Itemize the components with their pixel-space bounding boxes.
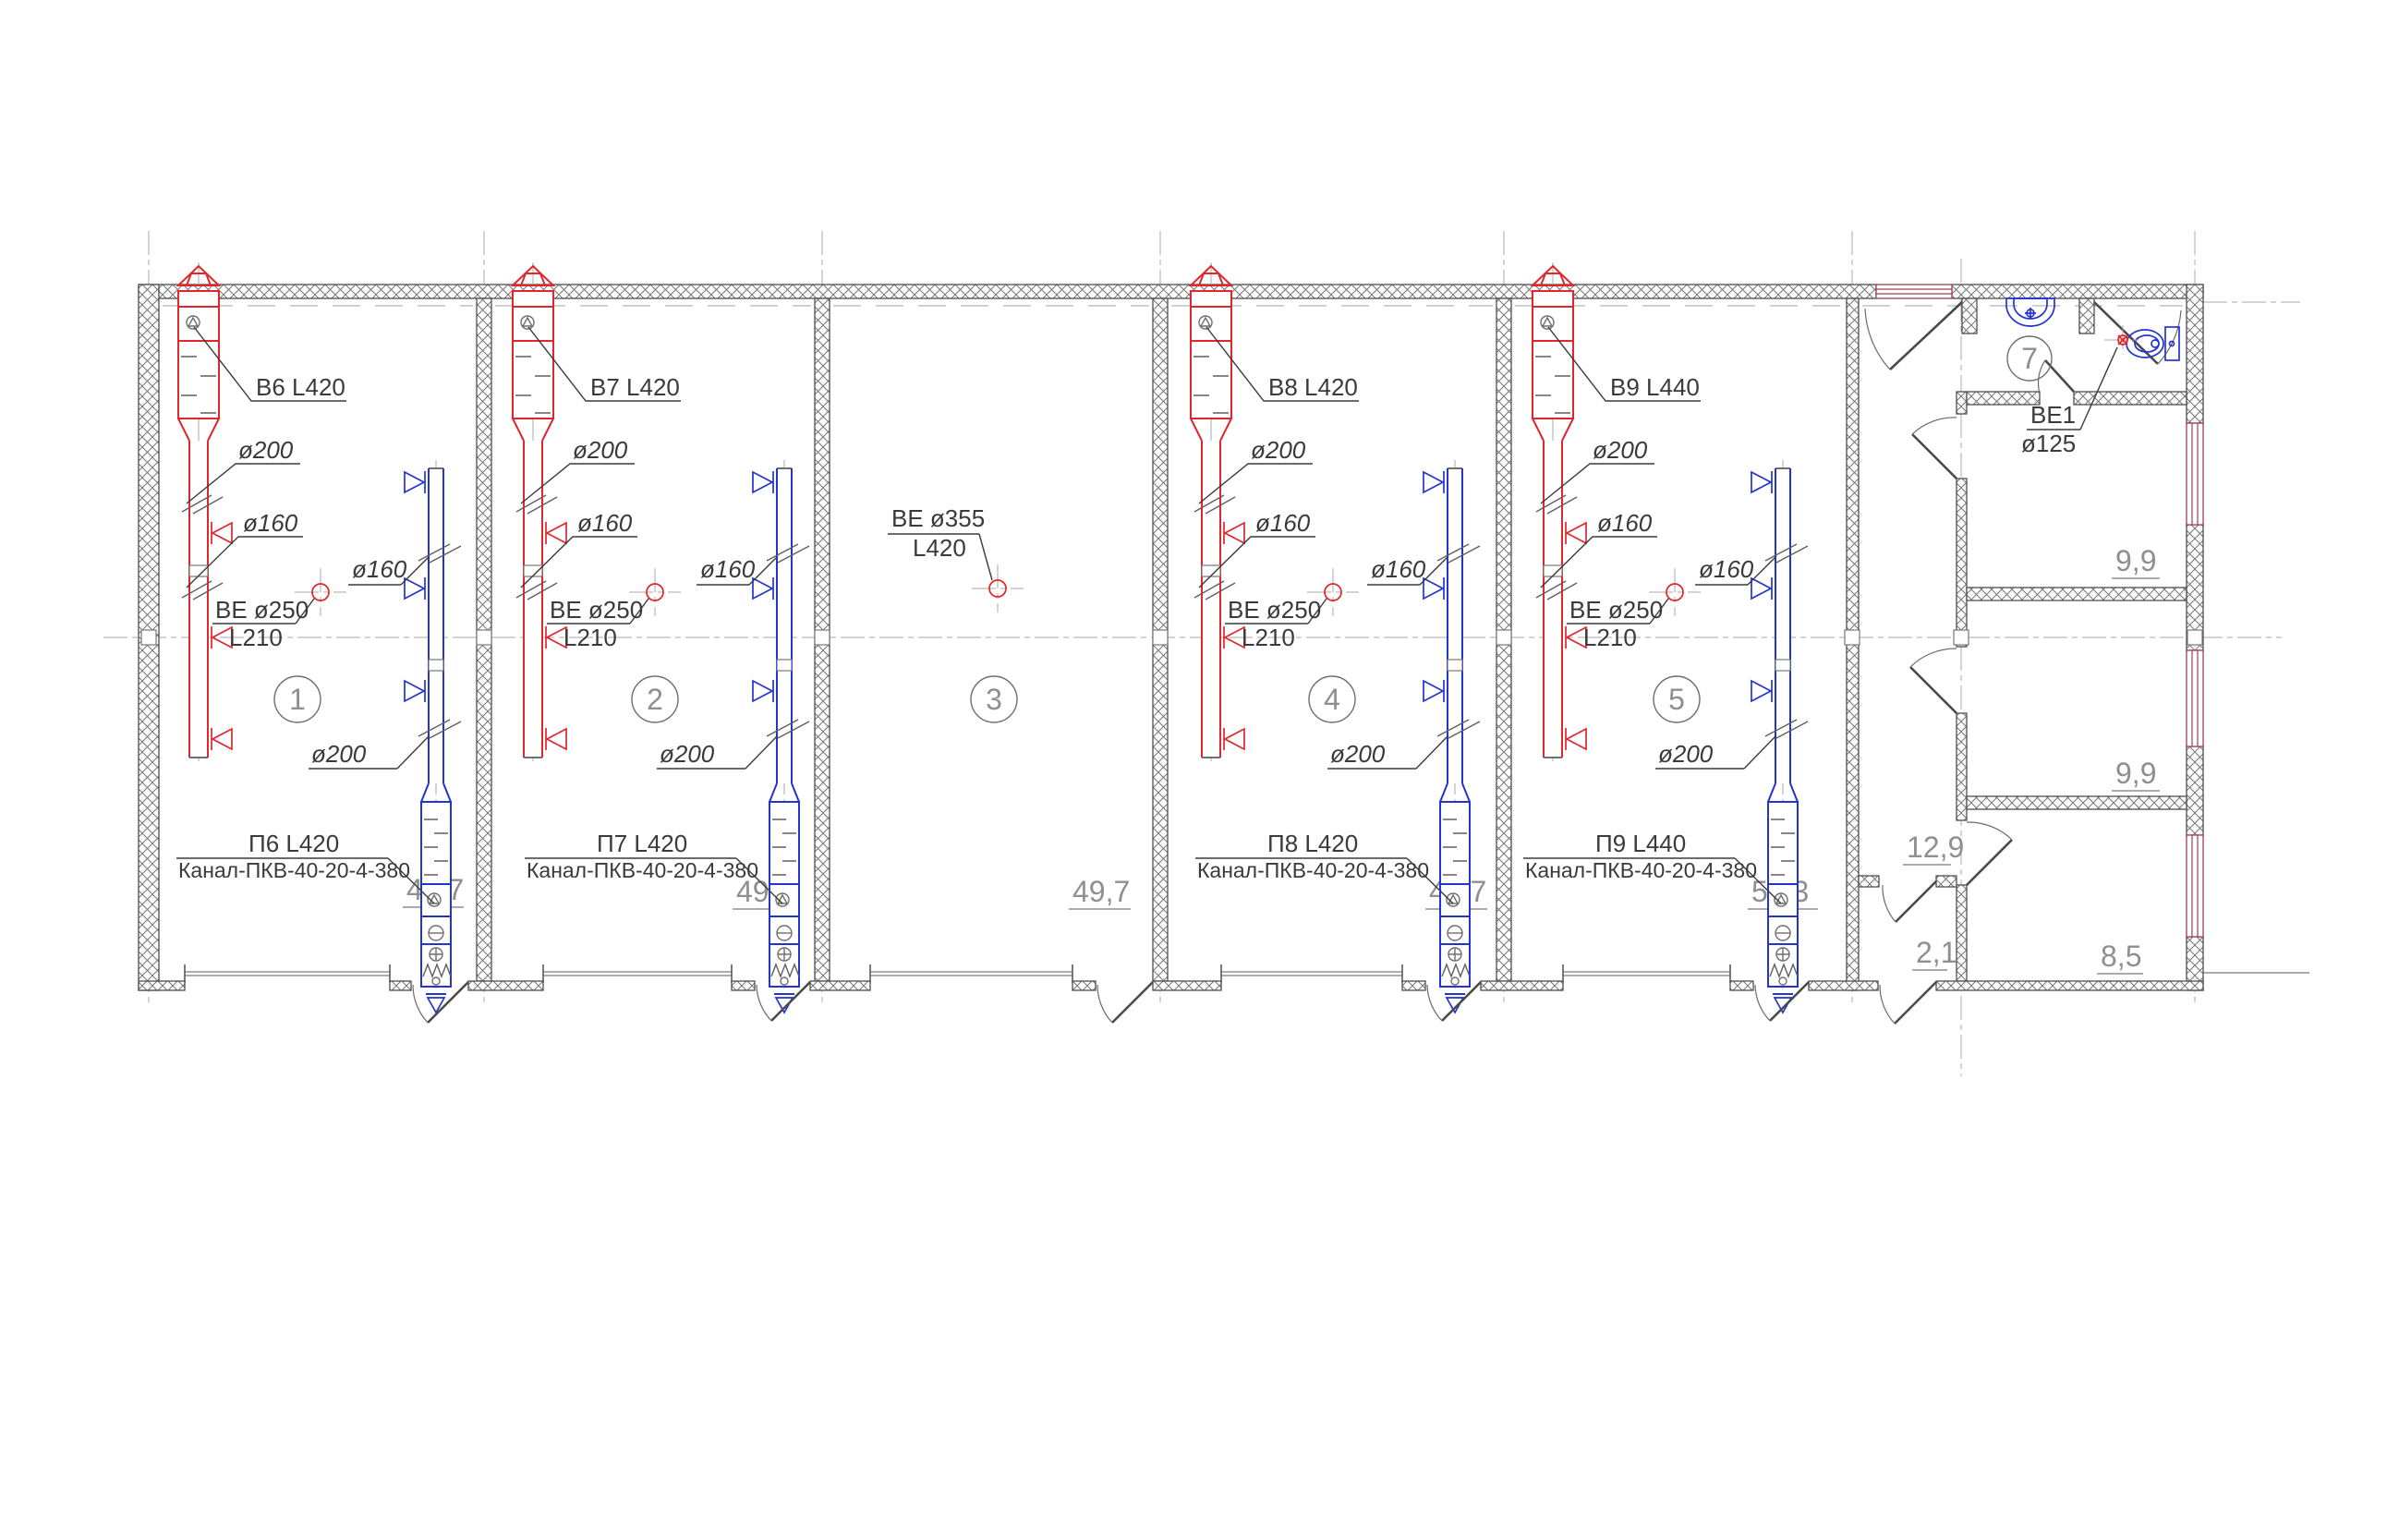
room-2-exhaust-d2: ø160 [577,509,633,537]
room-5-fan-tag: ВЕ ø250 [1569,596,1663,624]
wc-fan-dia: ø125 [2021,430,2076,457]
supply-unit-room4-icon [1424,460,1480,1013]
room-5-fan-len: L210 [1583,624,1637,651]
room-5-exhaust-d1: ø200 [1593,436,1648,464]
room-2-supply-tag: П7 L420 [597,830,687,857]
room-4-exhaust-tag: В8 L420 [1268,373,1358,401]
room-tag-1: 1 [274,676,321,722]
room-1-exhaust-d2: ø160 [243,509,298,537]
room-1-number: 1 [289,683,306,716]
ceiling-fan-markers [295,564,1701,616]
door-wc-right [2094,302,2181,364]
room-3-annotations: ВЕ ø355 L420 [888,504,992,580]
room-4-annotations: В8 L420 ø200 ø160 ВЕ ø250 L210 ø160 ø200… [1195,327,1453,903]
room-5-supply-d2: ø200 [1658,740,1714,768]
room-tag-3: 3 [971,676,1017,722]
room-3-area: 49,7 [1072,875,1130,908]
exhaust-shafts [178,262,1586,761]
wc-fan-tag: ВЕ1 [2030,401,2076,429]
room-5-supply-d1: ø160 [1699,555,1754,583]
door-wc-inner [2038,360,2074,394]
wc-room-number: 7 [2021,342,2038,375]
door-corridor-room-a [1912,418,1957,479]
sink-icon [2006,298,2054,326]
window-right-3 [2187,835,2203,937]
drawing-sheet: 49,7 49,7 49,7 49,7 52,3 [0,0,2399,1540]
door-vestibule [1883,881,1936,922]
supply-units [405,460,1808,1013]
room-1-fan-tag: ВЕ ø250 [215,596,309,624]
room-2-exhaust-tag: В7 L420 [590,373,680,401]
corridor-area: 12,9 [1907,831,1964,864]
door-room4 [1427,982,1481,1021]
room-4-supply-tag: П8 L420 [1267,830,1358,857]
side-room-areas: 9,9 9,9 12,9 2,1 8,5 [1903,544,2160,974]
room-1-supply-d1: ø160 [352,555,407,583]
window-top [1876,285,1952,298]
doors [413,302,2181,1024]
exhaust-shaft-room5-icon [1533,262,1586,761]
room-3-number: 3 [986,683,1002,716]
room-5-number: 5 [1668,683,1685,716]
room-3-roof-fan-len: L420 [913,534,966,562]
room-5-exhaust-tag: В9 L440 [1610,373,1700,401]
room-5-supply-tag: П9 L440 [1595,830,1686,857]
room-tag-4: 4 [1309,676,1355,722]
supply-unit-room5-icon [1751,460,1808,1013]
room-1-fan-len: L210 [229,624,283,651]
room-2-supply-d1: ø160 [700,555,756,583]
room-4-fan-len: L210 [1242,624,1295,651]
room-1-supply-unit: Канал-ПКВ-40-20-4-380 [178,858,410,882]
room-1-exhaust-d1: ø200 [238,436,294,464]
exhaust-shaft-room4-icon [1191,262,1244,761]
room-2-fan-tag: ВЕ ø250 [550,596,643,624]
room-b-area: 9,9 [2115,757,2156,790]
room-a-area: 9,9 [2115,544,2156,577]
room-2-number: 2 [647,683,663,716]
wc-fan-marker-icon [2104,325,2141,355]
room-tag-5: 5 [1654,676,1700,722]
window-right-2 [2187,650,2203,746]
door-room1 [413,982,468,1023]
room-c-area: 8,5 [2101,940,2141,973]
room-4-supply-d2: ø200 [1330,740,1386,768]
door-corridor-room-b [1910,649,1957,713]
room-1-exhaust-tag: В6 L420 [256,373,345,401]
door-entrance [1880,982,1936,1024]
exhaust-shaft-room1-icon [178,262,232,761]
toilet-icon [2126,327,2179,360]
door-corridor-room-c [1967,822,2012,885]
window-right-1 [2187,423,2203,525]
roof-fan-room3-icon [972,564,1024,612]
door-room3 [1097,982,1153,1023]
room-1-supply-d2: ø200 [311,740,367,768]
door-room5 [1755,982,1809,1021]
door-room2 [757,982,810,1021]
room-2-annotations: В7 L420 ø200 ø160 ВЕ ø250 L210 ø160 ø200… [521,327,782,903]
supply-unit-room2-icon [753,460,809,1013]
room-tag-7: 7 [2007,336,2052,381]
floor-plan: 49,7 49,7 49,7 49,7 52,3 [0,0,2399,1540]
vestibule-area: 2,1 [1916,936,1957,969]
room-tag-2: 2 [632,676,678,722]
room-2-exhaust-d1: ø200 [573,436,628,464]
room-2-supply-unit: Канал-ПКВ-40-20-4-380 [527,858,758,882]
room-1-supply-tag: П6 L420 [248,830,339,857]
room-4-fan-tag: ВЕ ø250 [1228,596,1321,624]
room-2-supply-d2: ø200 [660,740,715,768]
room-2-fan-len: L210 [563,624,617,651]
supply-unit-room1-icon [405,460,461,1013]
room-3-roof-fan-tag: ВЕ ø355 [891,504,985,532]
room-5-supply-unit: Канал-ПКВ-40-20-4-380 [1525,858,1757,882]
room-4-number: 4 [1324,683,1340,716]
room-4-exhaust-d1: ø200 [1251,436,1306,464]
room-4-supply-unit: Канал-ПКВ-40-20-4-380 [1197,858,1429,882]
room-4-supply-d1: ø160 [1371,555,1426,583]
room-4-exhaust-d2: ø160 [1255,509,1311,537]
exhaust-shaft-room2-icon [513,262,566,761]
door-wc-left [1865,302,1962,370]
room-5-exhaust-d2: ø160 [1597,509,1653,537]
